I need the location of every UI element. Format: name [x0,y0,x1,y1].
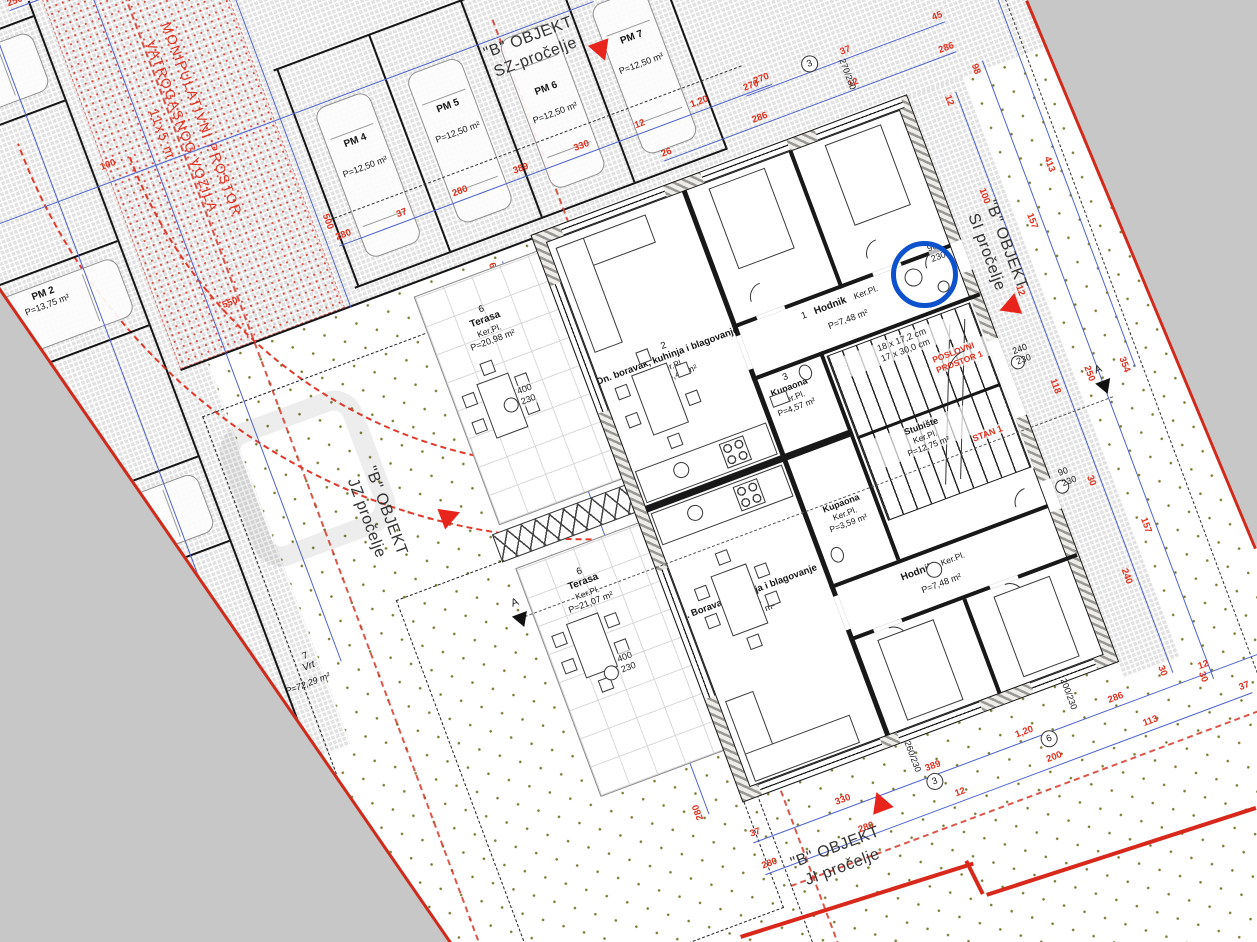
annotation-circle [891,241,958,308]
site-plan-canvas: R=120 PM 4 P=12,50 m² PM 5 P=12,50 m² PM… [0,0,1257,942]
